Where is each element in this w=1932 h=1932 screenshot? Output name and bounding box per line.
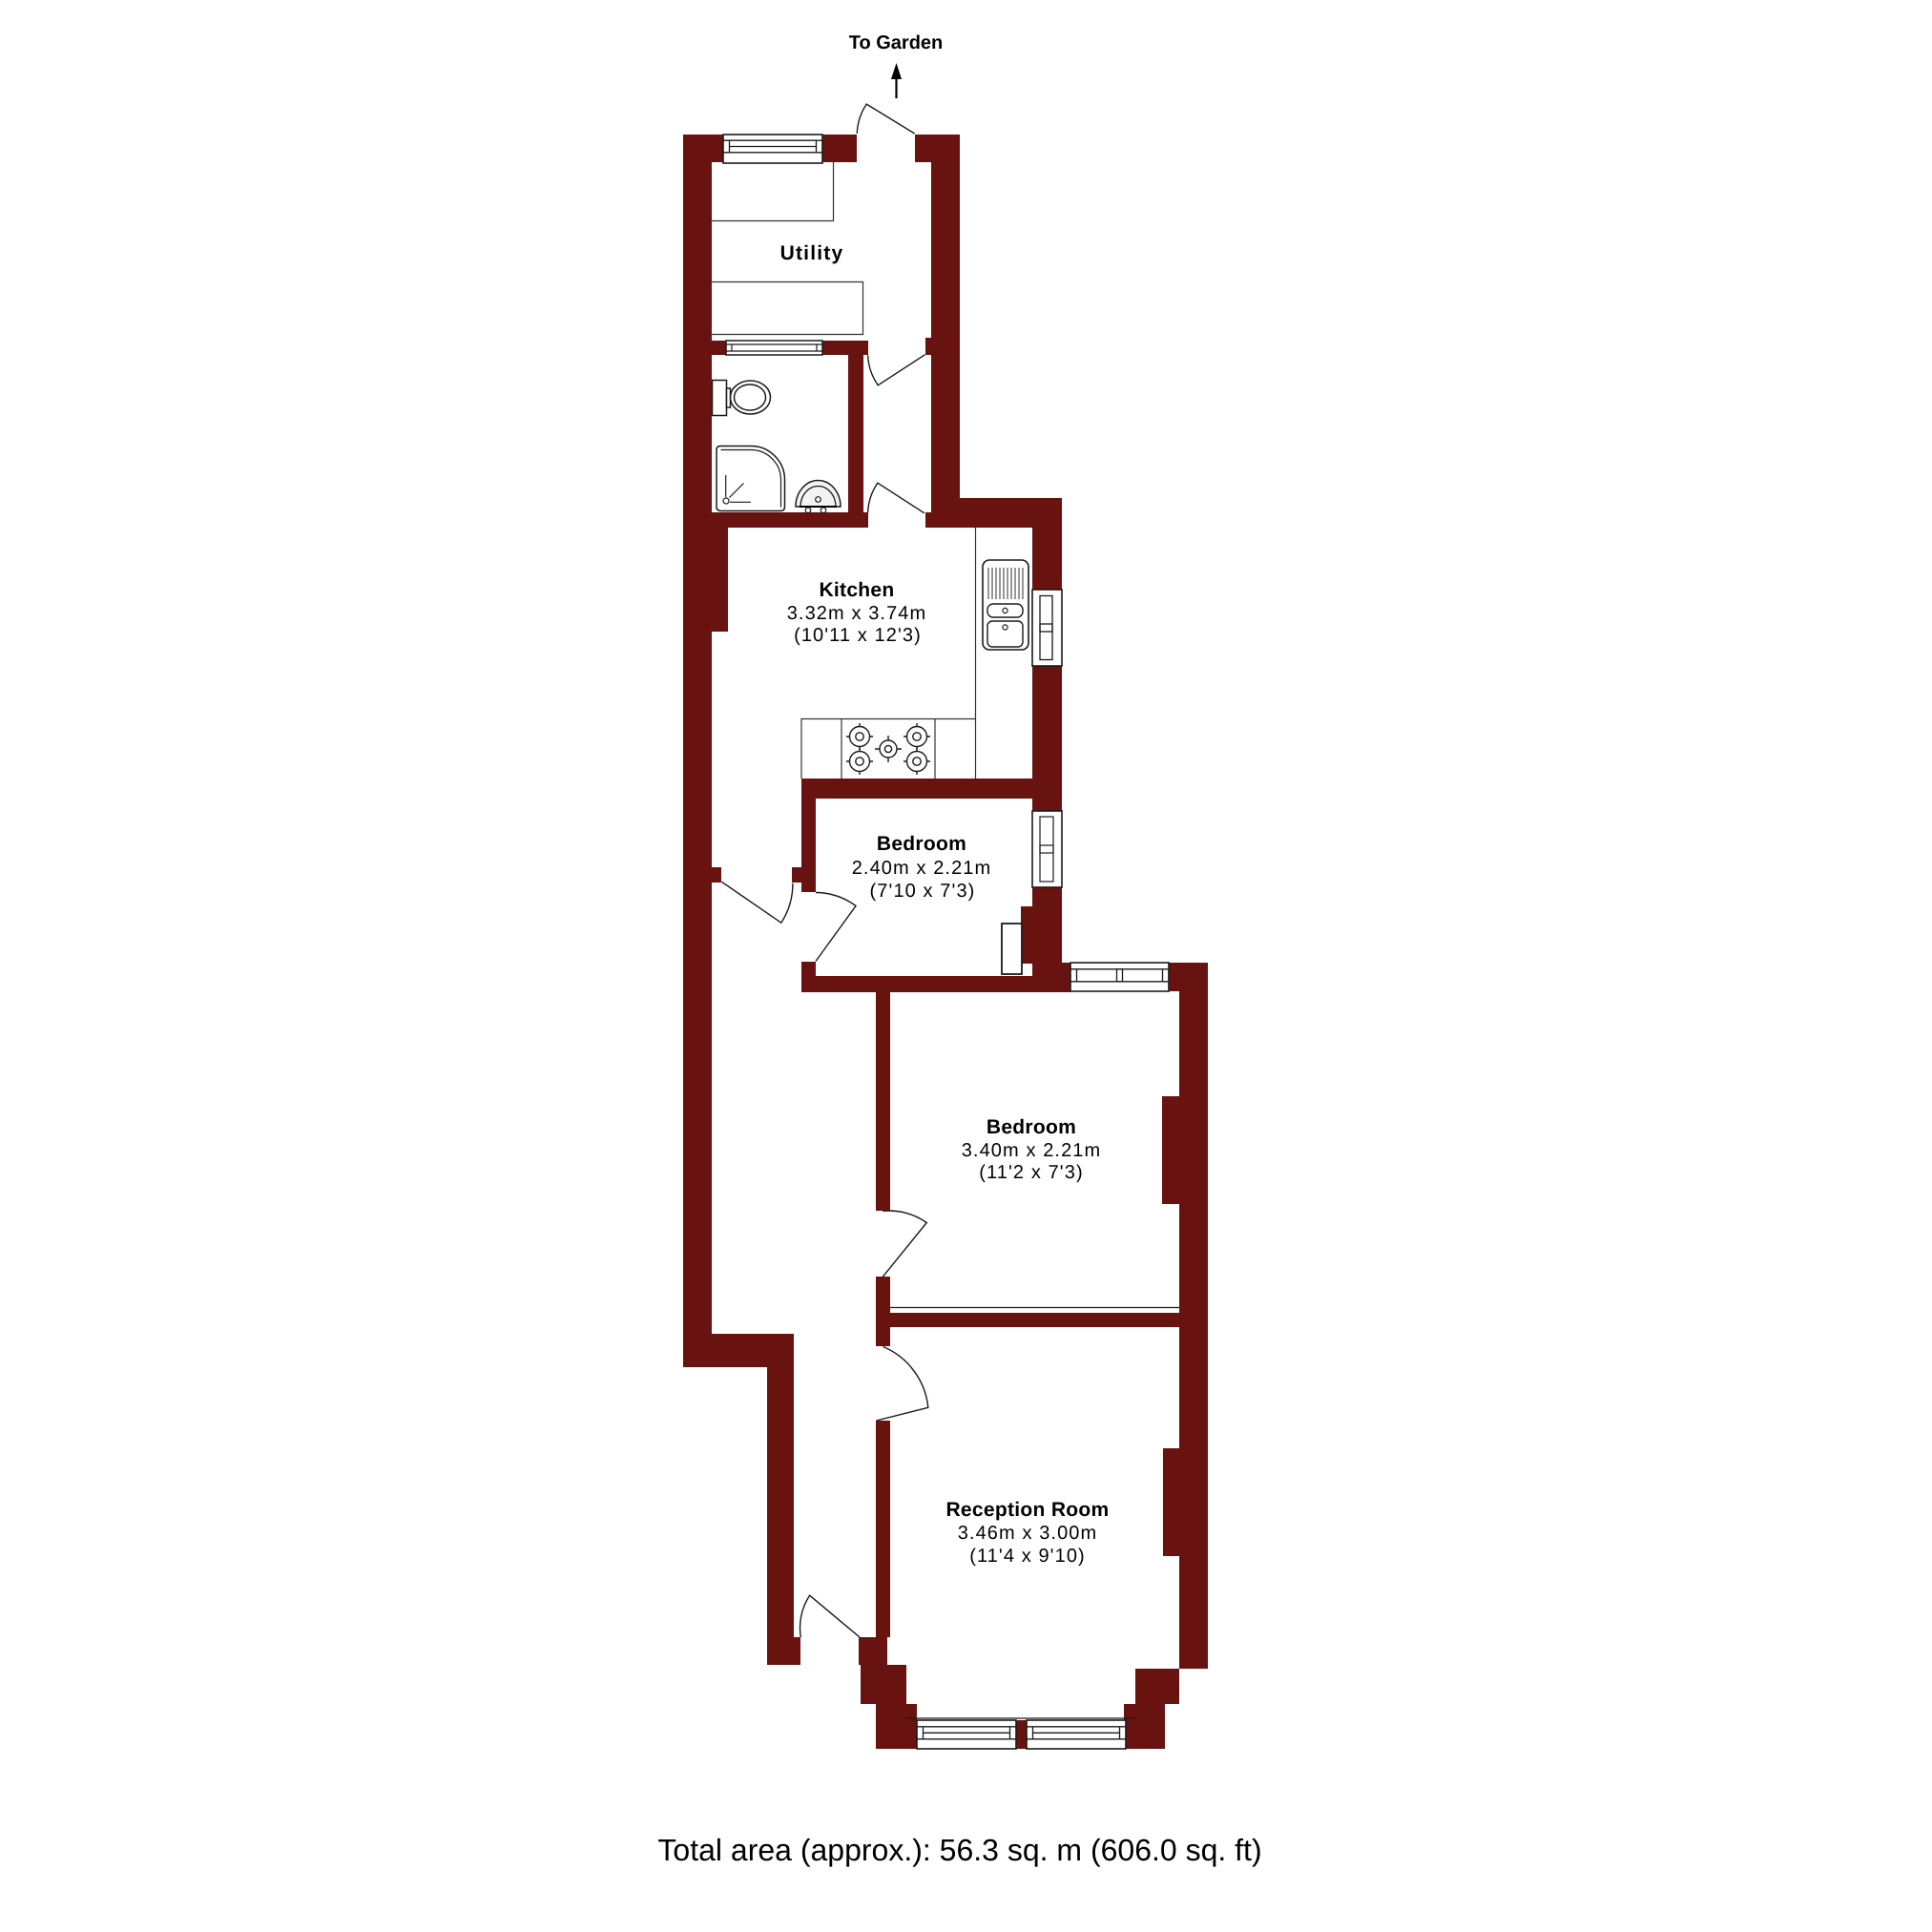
svg-text:Utility: Utility	[780, 242, 844, 264]
svg-text:Kitchen: Kitchen	[819, 579, 894, 601]
svg-text:(11'2 x 7'3): (11'2 x 7'3)	[979, 1162, 1083, 1183]
svg-text:Reception Room: Reception Room	[945, 1499, 1109, 1521]
svg-text:To Garden: To Garden	[849, 32, 944, 53]
svg-text:3.32m x 3.74m: 3.32m x 3.74m	[787, 603, 927, 624]
svg-text:(11'4 x 9'10): (11'4 x 9'10)	[969, 1546, 1086, 1567]
svg-text:(10'11 x 12'3): (10'11 x 12'3)	[794, 625, 922, 646]
svg-text:3.40m x 2.21m: 3.40m x 2.21m	[962, 1140, 1102, 1161]
svg-text:Bedroom: Bedroom	[987, 1116, 1076, 1138]
svg-text:Total area (approx.): 56.3 sq.: Total area (approx.): 56.3 sq. m (606.0 …	[657, 1833, 1261, 1867]
svg-text:3.46m x 3.00m: 3.46m x 3.00m	[958, 1523, 1098, 1544]
svg-text:2.40m x 2.21m: 2.40m x 2.21m	[852, 858, 992, 879]
svg-text:(7'10 x 7'3): (7'10 x 7'3)	[870, 881, 976, 902]
svg-text:Bedroom: Bedroom	[877, 833, 966, 855]
